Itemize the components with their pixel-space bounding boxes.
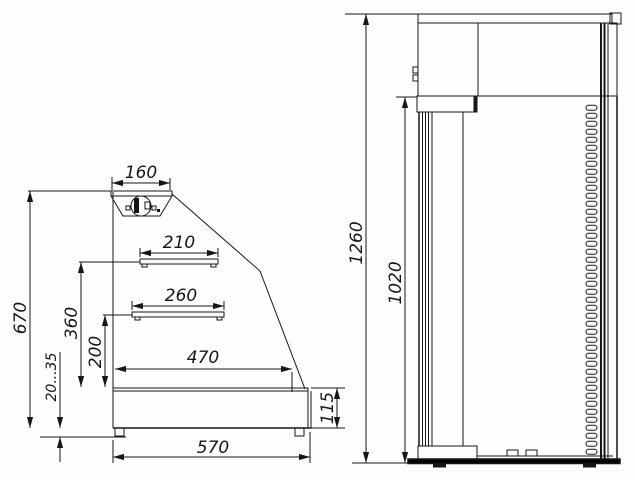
dim-stand-height: 1020: [386, 97, 417, 463]
dim-foot-adjustment-label: 20...35: [44, 352, 60, 401]
technical-drawing-canvas: 160 670 20...35 360 200: [0, 0, 635, 480]
front-step-box: [417, 96, 477, 112]
dim-base-height: 115: [311, 388, 345, 428]
side-upper-shelf-bracket-left: [142, 264, 147, 267]
side-middle-shelf-bracket-left: [135, 317, 140, 320]
front-switch-lower: [413, 75, 418, 81]
dim-upper-shelf-length-label: 210: [163, 233, 195, 253]
side-fan-unit: [126, 196, 160, 216]
dim-body-height: 670: [11, 191, 111, 428]
dim-base-height-label: 115: [318, 392, 338, 424]
front-support-column: [419, 112, 463, 446]
dim-base-width-label: 570: [197, 438, 229, 458]
dim-canopy-width: 160: [112, 163, 170, 190]
side-middle-shelf: [132, 312, 224, 317]
dim-middle-shelf-length-label: 260: [165, 286, 197, 306]
dim-overall-height: 1260: [345, 14, 418, 463]
front-foot-right: [583, 464, 596, 468]
side-upper-shelf-bracket-right: [211, 264, 216, 267]
dim-deck-length-label: 470: [187, 348, 219, 368]
side-deck: [113, 388, 308, 391]
dim-deck-length: 470: [115, 348, 292, 392]
side-canopy-top: [111, 191, 172, 196]
side-upper-shelf: [140, 259, 218, 264]
dim-middle-shelf-length: 260: [132, 286, 224, 310]
dim-body-height-label: 670: [11, 302, 31, 334]
front-upper-section: [418, 23, 617, 96]
front-view: 1260 1020: [345, 13, 621, 468]
dim-upper-shelf-length: 210: [140, 233, 218, 257]
dim-stand-height-label: 1020: [386, 261, 406, 304]
dim-base-width: 570: [113, 432, 310, 463]
front-switch-upper: [413, 67, 418, 73]
dim-canopy-width-label: 160: [125, 163, 157, 183]
side-foot-left: [115, 428, 124, 436]
front-canopy-band: [418, 14, 612, 23]
front-slotted-standard: [585, 104, 598, 456]
dim-middle-shelf-height-label: 200: [86, 336, 106, 368]
dim-foot-adjustment: 20...35: [44, 352, 60, 462]
side-middle-shelf-bracket-right: [217, 317, 222, 320]
display-case-drawing: 160 670 20...35 360 200: [0, 0, 635, 480]
side-view: 160 670 20...35 360 200: [11, 163, 345, 463]
side-base: [113, 390, 311, 428]
dim-upper-shelf-height-label: 360: [62, 307, 82, 339]
front-right-rails: [601, 23, 617, 460]
side-foot-right: [295, 428, 304, 436]
dim-middle-shelf-height: 200: [86, 315, 132, 387]
front-foot-left: [433, 464, 446, 468]
side-canopy-housing: [111, 196, 172, 216]
dim-overall-height-label: 1260: [347, 221, 367, 264]
